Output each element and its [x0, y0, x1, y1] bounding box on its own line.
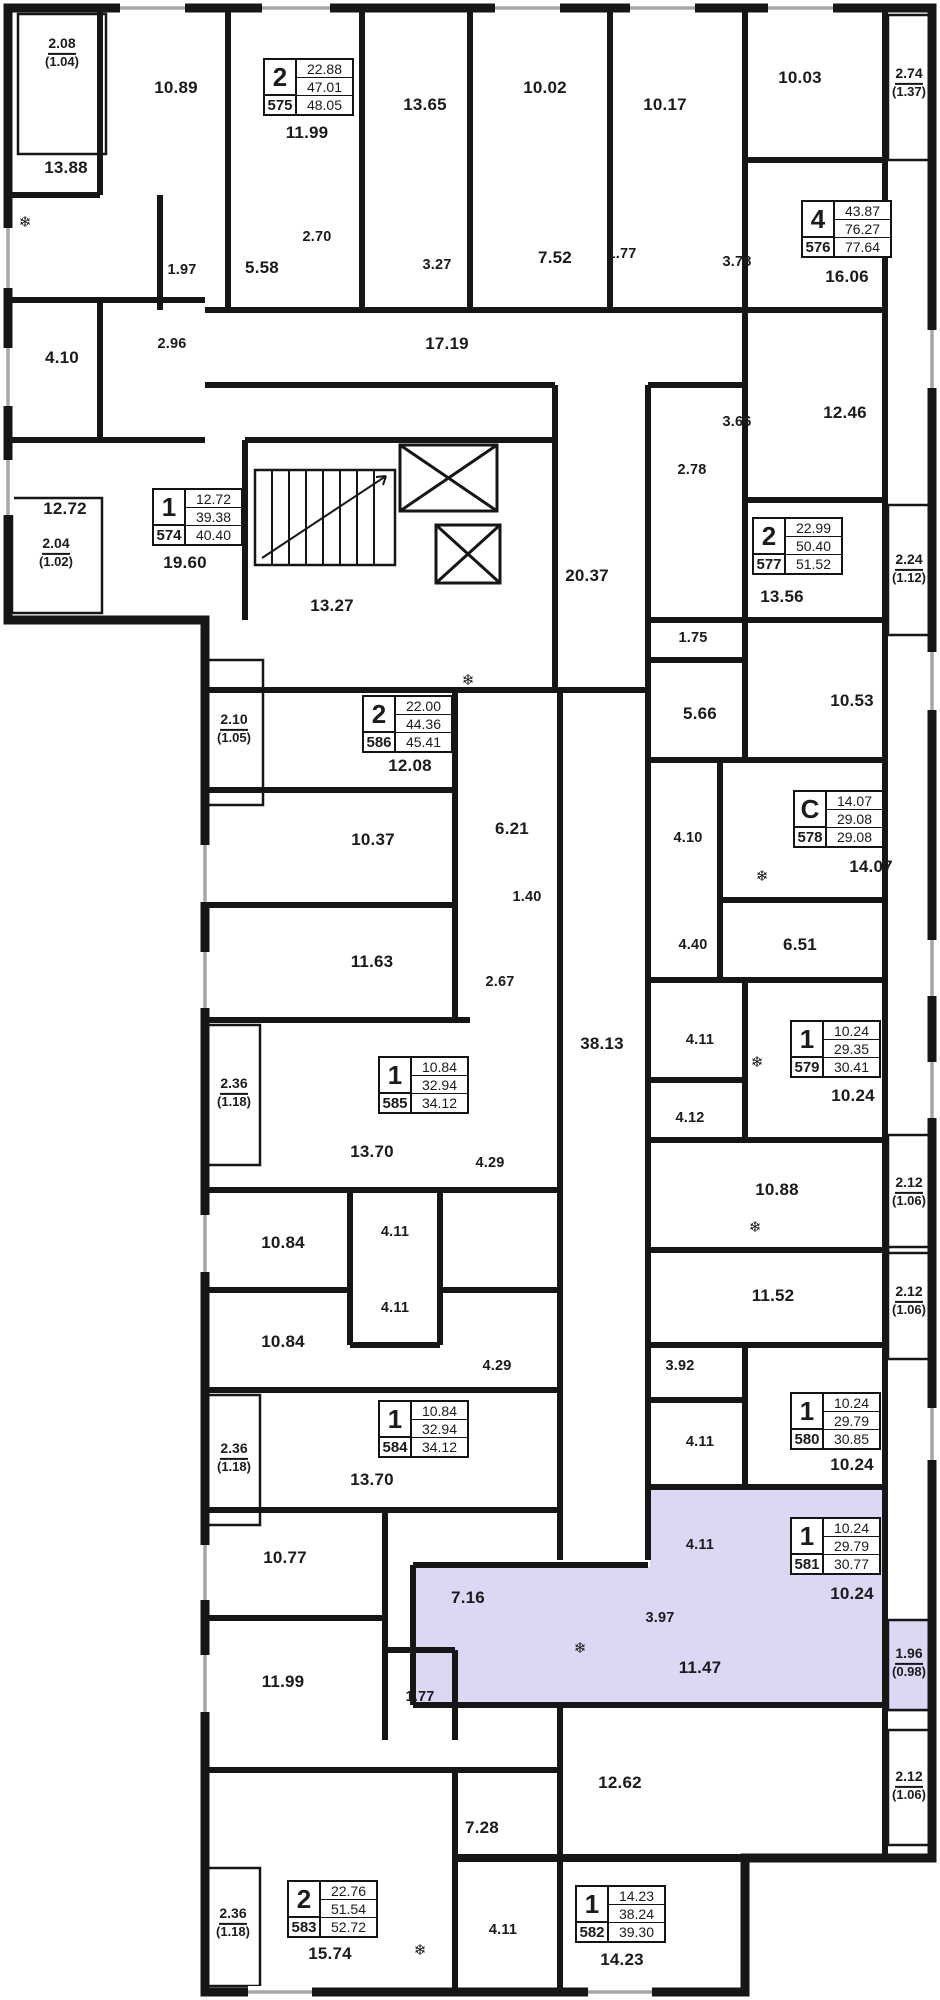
apartment-area: 29.79: [824, 1412, 879, 1430]
floor-plan: 13.8810.8911.9913.6510.0210.1710.0316.06…: [0, 0, 940, 2000]
balcony-label: 2.12(1.06): [892, 1283, 926, 1317]
apartment-area: 44.36: [396, 715, 451, 733]
apartment-number: 586: [364, 733, 396, 751]
balcony-label: 1.96(0.98): [892, 1645, 926, 1679]
room-area-label: 10.24: [830, 1584, 874, 1604]
room-area-label: 3.97: [645, 1610, 674, 1626]
apartment-living-area: 43.87: [835, 202, 890, 220]
apartment-number: 576: [803, 238, 835, 256]
room-area-label: 4.12: [675, 1110, 704, 1126]
fridge-icon: ❄: [462, 671, 475, 689]
balcony-label: 2.36(1.18): [217, 1440, 251, 1474]
room-area-label: 2.70: [302, 229, 331, 245]
apartment-info-box[interactable]: 222.8847.0157548.05: [263, 58, 354, 116]
balcony-reduced-area: (1.18): [216, 1925, 250, 1940]
room-area-label: 10.03: [778, 68, 822, 88]
apartment-info-box[interactable]: 114.2338.2458239.30: [575, 1885, 666, 1943]
apartment-living-area: 10.24: [824, 1022, 879, 1040]
apartment-type: 1: [792, 1519, 824, 1555]
apartment-total-area: 34.12: [412, 1438, 467, 1456]
apartment-type: 4: [803, 202, 835, 238]
apartment-info-box[interactable]: 110.8432.9458534.12: [378, 1056, 469, 1114]
apartment-total-area: 77.64: [835, 238, 890, 256]
apartment-area: 51.54: [321, 1900, 376, 1918]
room-area-label: 2.78: [677, 462, 706, 478]
balcony-area: 2.36: [220, 1441, 247, 1460]
balcony-area: 2.08: [48, 36, 75, 55]
apartment-info-box[interactable]: 110.2429.7958030.85: [790, 1392, 881, 1450]
apartment-number: 578: [795, 828, 827, 846]
stairs-icon: [255, 470, 395, 565]
balcony-area: 2.12: [895, 1175, 922, 1194]
apartment-total-area: 30.41: [824, 1058, 879, 1076]
room-area-label: 12.08: [388, 756, 432, 776]
room-area-label: 14.23: [600, 1950, 644, 1970]
room-area-label: 13.70: [350, 1142, 394, 1162]
apartment-living-area: 10.84: [412, 1402, 467, 1420]
apartment-number: 580: [792, 1430, 824, 1448]
room-area-label: 10.24: [831, 1086, 875, 1106]
room-area-label: 1.77: [405, 1689, 434, 1705]
room-area-label: 4.11: [686, 1434, 714, 1450]
room-area-label: 10.84: [261, 1332, 305, 1352]
apartment-area: 29.79: [824, 1537, 879, 1555]
apartment-living-area: 14.07: [827, 792, 882, 810]
apartment-area: 76.27: [835, 220, 890, 238]
room-area-label: 10.84: [261, 1233, 305, 1253]
room-area-label: 5.66: [683, 704, 717, 724]
balcony-reduced-area: (1.06): [892, 1194, 926, 1209]
balcony-label: 2.04(1.02): [39, 535, 73, 569]
room-area-label: 6.21: [495, 819, 529, 839]
apartment-type: C: [795, 792, 827, 828]
room-area-label: 3.78: [722, 254, 751, 270]
balcony-reduced-area: (1.18): [217, 1460, 251, 1475]
apartment-total-area: 51.52: [786, 555, 841, 573]
room-area-label: 20.37: [565, 566, 609, 586]
room-area-label: 6.51: [783, 935, 817, 955]
room-area-label: 1.75: [678, 630, 707, 646]
apartment-info-box[interactable]: C14.0729.0857829.08: [793, 790, 884, 848]
apartment-living-area: 10.24: [824, 1394, 879, 1412]
apartment-total-area: 40.40: [186, 526, 241, 544]
fridge-icon: ❄: [414, 1941, 427, 1959]
room-area-label: 17.19: [425, 334, 469, 354]
apartment-type: 2: [754, 519, 786, 555]
fridge-icon: ❄: [751, 1053, 764, 1071]
balcony-reduced-area: (1.12): [892, 571, 926, 586]
room-area-label: 10.88: [755, 1180, 799, 1200]
apartment-number: 582: [577, 1923, 609, 1941]
room-area-label: 3.92: [665, 1358, 694, 1374]
balcony-area: 2.12: [895, 1769, 922, 1788]
fridge-icon: ❄: [756, 867, 769, 885]
balcony-label: 2.10(1.05): [217, 711, 251, 745]
fridge-icon: ❄: [19, 213, 32, 231]
apartment-living-area: 12.72: [186, 490, 241, 508]
apartment-area: 29.35: [824, 1040, 879, 1058]
apartment-info-box[interactable]: 110.2429.7958130.77: [790, 1517, 881, 1575]
apartment-area: 29.08: [827, 810, 882, 828]
apartment-living-area: 22.76: [321, 1882, 376, 1900]
apartment-area: 50.40: [786, 537, 841, 555]
balcony-area: 2.36: [219, 1906, 246, 1925]
room-area-label: 12.72: [43, 499, 87, 519]
room-area-label: 2.67: [485, 974, 514, 990]
apartment-type: 1: [380, 1402, 412, 1438]
room-area-label: 15.74: [308, 1944, 352, 1964]
room-area-label: 10.77: [263, 1548, 307, 1568]
balcony-reduced-area: (0.98): [892, 1665, 926, 1680]
room-area-label: 13.65: [403, 95, 447, 115]
apartment-type: 1: [792, 1022, 824, 1058]
apartment-number: 574: [154, 526, 186, 544]
room-area-label: 13.88: [44, 158, 88, 178]
room-area-label: 7.16: [451, 1588, 485, 1608]
apartment-type: 1: [792, 1394, 824, 1430]
balcony-area: 1.96: [895, 1646, 922, 1665]
balcony-label: 2.36(1.18): [217, 1075, 251, 1109]
room-area-label: 1.97: [167, 262, 196, 278]
room-area-label: 5.58: [245, 258, 279, 278]
room-area-label: 2.96: [157, 336, 186, 352]
apartment-type: 1: [577, 1887, 609, 1923]
balcony-label: 2.12(1.06): [892, 1174, 926, 1208]
apartment-info-box[interactable]: 222.0044.3658645.41: [362, 695, 453, 753]
apartment-type: 1: [380, 1058, 412, 1094]
apartment-type: 2: [364, 697, 396, 733]
room-area-label: 3.27: [422, 257, 451, 273]
apartment-total-area: 30.85: [824, 1430, 879, 1448]
apartment-number: 585: [380, 1094, 412, 1112]
apartment-total-area: 39.30: [609, 1923, 664, 1941]
apartment-number: 575: [265, 96, 297, 114]
balcony-label: 2.08(1.04): [45, 35, 79, 69]
balcony-reduced-area: (1.06): [892, 1303, 926, 1318]
apartment-living-area: 22.00: [396, 697, 451, 715]
room-area-label: 4.29: [482, 1358, 511, 1374]
apartment-number: 583: [289, 1918, 321, 1936]
fridge-icon: ❄: [749, 1218, 762, 1236]
apartment-total-area: 48.05: [297, 96, 352, 114]
room-area-label: 4.11: [381, 1224, 409, 1240]
balcony-area: 2.74: [895, 66, 922, 85]
balcony-label: 2.36(1.18): [216, 1905, 250, 1939]
apartment-info-box[interactable]: 222.7651.5458352.72: [287, 1880, 378, 1938]
apartment-area: 32.94: [412, 1420, 467, 1438]
apartment-type: 2: [289, 1882, 321, 1918]
balcony-area: 2.10: [220, 712, 247, 731]
apartment-info-box[interactable]: 443.8776.2757677.64: [801, 200, 892, 258]
room-area-label: 12.46: [823, 403, 867, 423]
apartment-number: 579: [792, 1058, 824, 1076]
balcony-reduced-area: (1.05): [217, 731, 251, 746]
room-area-label: 4.40: [678, 937, 707, 953]
highlighted-apartment-region[interactable]: [415, 1567, 885, 1705]
room-area-label: 4.29: [475, 1155, 504, 1171]
elevator-icon: [400, 445, 500, 583]
room-area-label: 4.11: [489, 1922, 517, 1938]
apartment-living-area: 22.88: [297, 60, 352, 78]
apartment-total-area: 34.12: [412, 1094, 467, 1112]
room-area-label: 38.13: [580, 1034, 624, 1054]
apartment-info-box[interactable]: 222.9950.4057751.52: [752, 517, 843, 575]
room-area-label: 11.63: [351, 952, 394, 972]
balcony-reduced-area: (1.18): [217, 1095, 251, 1110]
balcony-reduced-area: (1.06): [892, 1788, 926, 1803]
apartment-info-box[interactable]: 110.8432.9458434.12: [378, 1400, 469, 1458]
room-area-label: 10.37: [351, 830, 395, 850]
apartment-number: 577: [754, 555, 786, 573]
room-area-label: 11.99: [262, 1672, 305, 1692]
room-area-label: 19.60: [163, 553, 207, 573]
balcony-reduced-area: (1.37): [892, 85, 926, 100]
room-area-label: 13.56: [760, 587, 804, 607]
room-area-label: 12.62: [598, 1773, 642, 1793]
balcony-reduced-area: (1.04): [45, 55, 79, 70]
room-area-label: 14.07: [849, 857, 893, 877]
apartment-number: 581: [792, 1555, 824, 1573]
room-area-label: 13.27: [310, 596, 354, 616]
fridge-icon: ❄: [574, 1639, 587, 1657]
room-area-label: 11.47: [679, 1658, 722, 1678]
room-area-label: 10.89: [154, 78, 198, 98]
room-area-label: 1.77: [607, 246, 636, 262]
room-area-label: 1.40: [512, 889, 541, 905]
room-area-label: 10.02: [523, 78, 567, 98]
room-area-label: 4.10: [673, 830, 702, 846]
apartment-total-area: 45.41: [396, 733, 451, 751]
apartment-living-area: 14.23: [609, 1887, 664, 1905]
room-area-label: 4.11: [686, 1032, 714, 1048]
room-area-label: 4.10: [45, 348, 79, 368]
room-area-label: 3.66: [722, 414, 751, 430]
apartment-area: 32.94: [412, 1076, 467, 1094]
room-area-label: 4.11: [381, 1300, 409, 1316]
apartment-type: 1: [154, 490, 186, 526]
room-area-label: 10.53: [830, 691, 874, 711]
room-area-label: 7.52: [538, 248, 572, 268]
apartment-living-area: 22.99: [786, 519, 841, 537]
balcony-area: 2.24: [895, 552, 922, 571]
room-area-label: 13.70: [350, 1470, 394, 1490]
apartment-area: 47.01: [297, 78, 352, 96]
balcony-label: 2.12(1.06): [892, 1768, 926, 1802]
apartment-info-box[interactable]: 110.2429.3557930.41: [790, 1020, 881, 1078]
balcony-area: 2.36: [220, 1076, 247, 1095]
apartment-number: 584: [380, 1438, 412, 1456]
room-area-label: 11.99: [286, 123, 329, 143]
room-area-label: 10.17: [643, 95, 687, 115]
room-area-label: 7.28: [465, 1818, 499, 1838]
apartment-total-area: 30.77: [824, 1555, 879, 1573]
balcony-reduced-area: (1.02): [39, 555, 73, 570]
apartment-total-area: 29.08: [827, 828, 882, 846]
apartment-living-area: 10.84: [412, 1058, 467, 1076]
room-area-label: 10.24: [830, 1455, 874, 1475]
apartment-total-area: 52.72: [321, 1918, 376, 1936]
apartment-type: 2: [265, 60, 297, 96]
apartment-area: 39.38: [186, 508, 241, 526]
apartment-info-box[interactable]: 112.7239.3857440.40: [152, 488, 243, 546]
balcony-area: 2.04: [42, 536, 69, 555]
balcony-label: 2.24(1.12): [892, 551, 926, 585]
room-area-label: 11.52: [752, 1286, 795, 1306]
balcony-area: 2.12: [895, 1284, 922, 1303]
apartment-living-area: 10.24: [824, 1519, 879, 1537]
room-area-label: 4.11: [686, 1537, 714, 1553]
room-area-label: 16.06: [825, 267, 869, 287]
balcony-label: 2.74(1.37): [892, 65, 926, 99]
apartment-area: 38.24: [609, 1905, 664, 1923]
